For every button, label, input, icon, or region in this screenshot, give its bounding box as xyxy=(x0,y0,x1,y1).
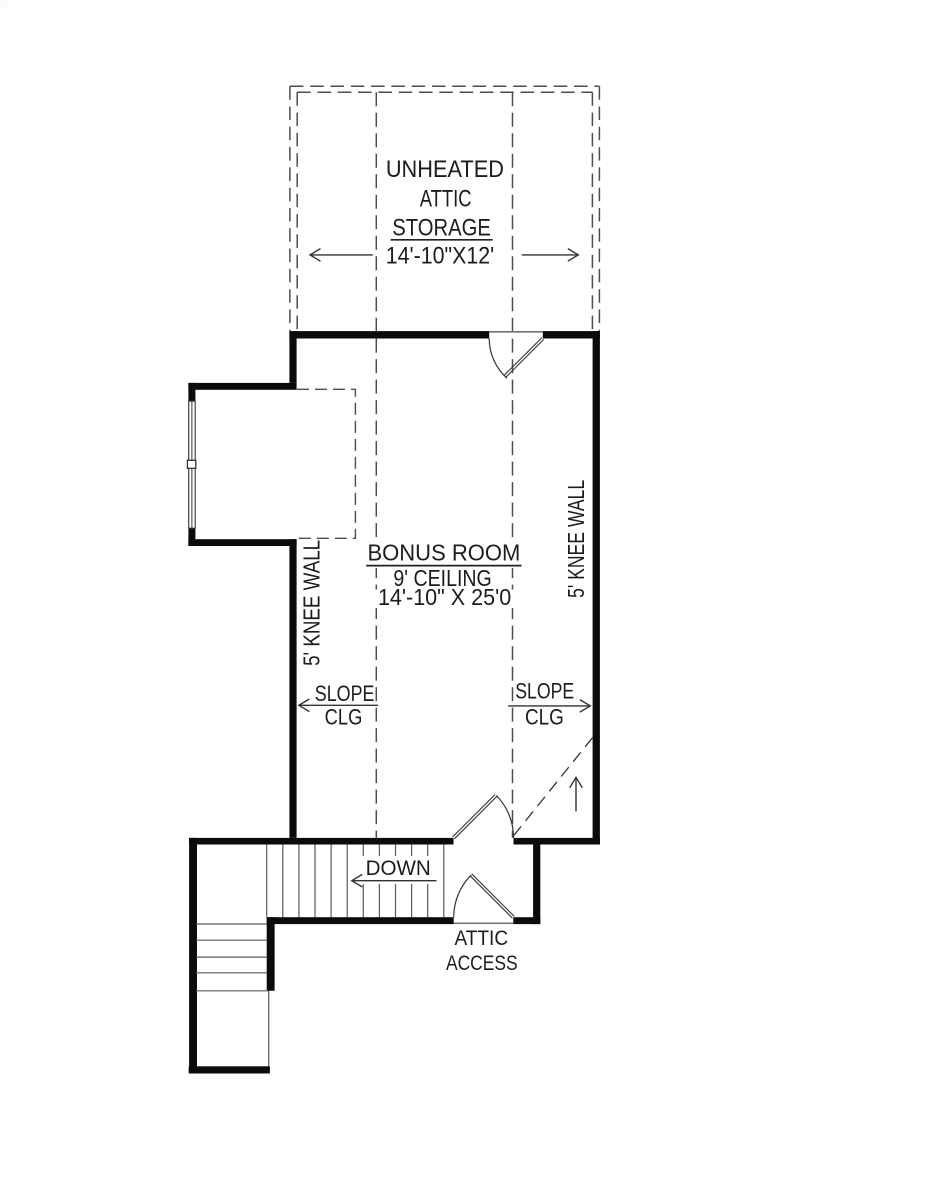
svg-text:BONUS ROOM: BONUS ROOM xyxy=(368,540,521,566)
svg-text:14'-10"X12': 14'-10"X12' xyxy=(386,243,494,270)
svg-text:ATTIC: ATTIC xyxy=(455,926,509,950)
svg-text:STORAGE: STORAGE xyxy=(392,215,491,242)
svg-text:ATTIC: ATTIC xyxy=(420,185,472,212)
svg-text:ACCESS: ACCESS xyxy=(446,951,518,975)
svg-text:5' KNEE WALL: 5' KNEE WALL xyxy=(563,480,589,598)
svg-text:SLOPE: SLOPE xyxy=(515,679,574,704)
svg-text:UNHEATED: UNHEATED xyxy=(386,156,504,183)
svg-text:5' KNEE WALL: 5' KNEE WALL xyxy=(298,540,324,666)
svg-text:CLG: CLG xyxy=(325,705,363,730)
svg-text:DOWN: DOWN xyxy=(366,856,431,880)
svg-text:14'-10" X 25'0: 14'-10" X 25'0 xyxy=(378,584,511,610)
svg-text:CLG: CLG xyxy=(525,705,564,730)
svg-text:SLOPE: SLOPE xyxy=(315,681,375,706)
